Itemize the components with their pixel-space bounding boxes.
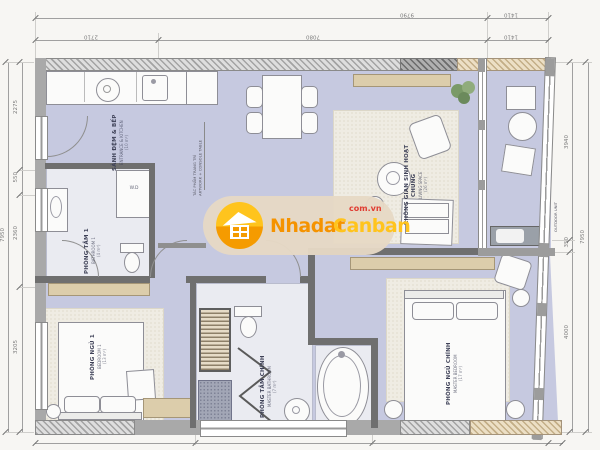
- room-name: PHÒNG NGỦ CHÍNH: [446, 334, 453, 414]
- bathroom1-window: [35, 188, 48, 232]
- nightstand: [384, 400, 403, 419]
- bedroom1-wall-right: [190, 276, 196, 428]
- bathroom1-basin-icon: [50, 196, 62, 218]
- dim-line-bottom: [35, 443, 563, 444]
- artwork-leader-line: [204, 122, 205, 190]
- dim-label-350: 350: [565, 237, 571, 248]
- dim-label-2710: 2710: [84, 33, 98, 39]
- dim-label-9790: 9790: [400, 11, 414, 17]
- room-area: (17 m²): [458, 334, 463, 414]
- dim-label-2360: 2360: [14, 226, 20, 240]
- house-body-icon: [230, 225, 249, 239]
- master-headboard: [404, 290, 504, 299]
- top-wall-beige: [457, 58, 548, 71]
- dim-label-1410-outer: 1410: [504, 11, 518, 17]
- dining-chair: [246, 86, 263, 108]
- room-label-master-bathroom: PHÒNG TẮM CHÍNH MASTER BATHROOM (7 m²): [260, 348, 277, 426]
- bedside-lamp-icon: [46, 404, 61, 419]
- toilet-bowl-icon: [124, 252, 140, 273]
- room-area: (7 m²): [272, 348, 277, 426]
- dim-line-top-inner: [35, 40, 549, 41]
- balcony-stool: [501, 144, 536, 177]
- tub-nook-wall-right: [371, 338, 378, 428]
- dim-label-3940: 3940: [565, 135, 571, 149]
- wall-post: [534, 388, 543, 400]
- dim-label-left-7950: 7950: [1, 228, 7, 242]
- room-label-master-bedroom: PHÒNG NGỦ CHÍNH MASTER BEDROOM (17 m²): [446, 334, 463, 414]
- dim-label-right-7950: 7950: [581, 230, 587, 244]
- wall-post: [537, 303, 546, 316]
- witness-line: [19, 195, 35, 196]
- bottom-wall-hatch: [35, 420, 135, 435]
- bathtub-faucet-icon: [338, 351, 345, 358]
- witness-line: [19, 170, 35, 171]
- dining-chair: [301, 86, 318, 108]
- bathroom1-wall-top: [45, 163, 155, 169]
- dim-label-2275: 2275: [14, 100, 20, 114]
- room-label-bedroom1: PHÒNG NGỦ 1 BEDROOM 1 (13 m²): [90, 332, 107, 382]
- top-wall: [35, 58, 401, 71]
- room-area: (26 m²): [423, 138, 428, 232]
- room-name: SẢNH ĐỆM & BẾP: [112, 110, 119, 176]
- floor-plan: 9790 1410 2710 7080 1410 2275 550 2360 3…: [0, 0, 600, 450]
- dim-label-550: 550: [14, 172, 20, 183]
- washbasin-drain-icon: [292, 406, 300, 414]
- dim-label-3205: 3205: [14, 340, 20, 354]
- house-window-icon: [241, 233, 247, 237]
- bottom-wall-hatch: [400, 420, 470, 435]
- bedroom1-headboard: [58, 412, 142, 420]
- master-wardrobe: [350, 257, 495, 270]
- wall-post: [478, 58, 485, 72]
- witness-line: [552, 252, 575, 253]
- bedroom1-window: [35, 322, 48, 410]
- main-wall: [35, 276, 150, 283]
- witness-line: [19, 287, 35, 288]
- watermark-house-icon: [216, 202, 263, 249]
- faucet-icon: [151, 79, 156, 84]
- bathtub-inner: [323, 355, 361, 417]
- master-bath-closet: [199, 308, 231, 372]
- outdoor-unit-annotation: OUTDOOR UNIT: [553, 178, 558, 232]
- dim-line-right-inner: [572, 62, 573, 432]
- washer-dryer-label: W.D: [116, 186, 152, 191]
- coffee-table-inner: [386, 171, 400, 185]
- dim-tick: [559, 440, 565, 446]
- house-roof-icon: [221, 210, 256, 225]
- room-name: PHÒNG TẮM 1: [84, 228, 91, 274]
- dim-label-7080: 7080: [306, 33, 320, 39]
- pillow: [412, 302, 454, 320]
- side-table: [512, 289, 530, 307]
- fridge-icon: [186, 71, 218, 105]
- balcony-bottom-wall: [478, 248, 555, 256]
- wall-post: [478, 120, 485, 130]
- counter-divider: [136, 72, 137, 102]
- dining-chair: [246, 112, 263, 134]
- bedroom1-wardrobe: [48, 283, 150, 296]
- dim-label-4000: 4000: [565, 325, 571, 339]
- bedroom1-bench: [143, 398, 192, 418]
- pillow: [456, 302, 498, 320]
- room-name: PHÒNG TẮM CHÍNH: [260, 348, 267, 426]
- artwork-annotation: TÁC PHẨM TRANG TRÍ ARTWORK + CONSOLE TAB…: [192, 120, 203, 196]
- balcony-stool: [506, 86, 536, 110]
- witness-line: [158, 33, 159, 58]
- dim-label-1410-inner: 1410: [504, 33, 518, 39]
- room-area: (13 m²): [102, 332, 107, 382]
- wall-post: [545, 58, 555, 76]
- house-window-icon: [233, 227, 239, 231]
- balcony-glazing: [478, 58, 487, 250]
- watermark: Nhadat Canban com.vn: [203, 196, 395, 255]
- house-window-icon: [233, 233, 239, 237]
- witness-line: [560, 432, 592, 433]
- pillow: [100, 396, 136, 413]
- watermark-domain: com.vn: [349, 204, 382, 213]
- counter-divider: [84, 72, 85, 102]
- shower-floor: [198, 380, 232, 422]
- watermark-brand-part2: Canban: [333, 215, 410, 237]
- room-label-kitchen: SẢNH ĐỆM & BẾP ENTRANCE & KITCHEN (10 m²…: [112, 110, 129, 176]
- dim-line-right-outer: [588, 62, 589, 432]
- nightstand: [506, 400, 525, 419]
- dining-table: [262, 75, 302, 139]
- console-table: [353, 74, 451, 87]
- bottom-wall-beige: [470, 420, 562, 435]
- room-area: (10 m²): [124, 110, 129, 176]
- dim-line-left-outer: [8, 62, 9, 432]
- plant-icon: [458, 92, 470, 104]
- room-name: PHÒNG NGỦ 1: [90, 332, 97, 382]
- dim-line-top-outer: [35, 18, 549, 19]
- artwork-line2: ARTWORK + CONSOLE TABLE: [197, 120, 202, 196]
- dim-line-left-inner: [22, 62, 23, 432]
- main-wall: [186, 276, 266, 283]
- pillow: [64, 396, 100, 413]
- cooktop-burner-icon: [103, 85, 111, 93]
- toilet-bowl-icon: [240, 316, 257, 338]
- dining-chair: [301, 112, 318, 134]
- room-area: (4 m²): [96, 228, 101, 274]
- wall-post: [478, 180, 485, 190]
- top-wall-dark: [400, 58, 458, 71]
- house-window-icon: [241, 227, 247, 231]
- room-label-bathroom1: PHÒNG TẮM 1 BATHROOM 1 (4 m²): [84, 228, 101, 274]
- master-bath-wall-right: [308, 248, 315, 345]
- ac-outdoor-unit-fan: [496, 229, 524, 243]
- tub-nook-wall-top: [308, 338, 378, 345]
- balcony-table: [508, 112, 537, 141]
